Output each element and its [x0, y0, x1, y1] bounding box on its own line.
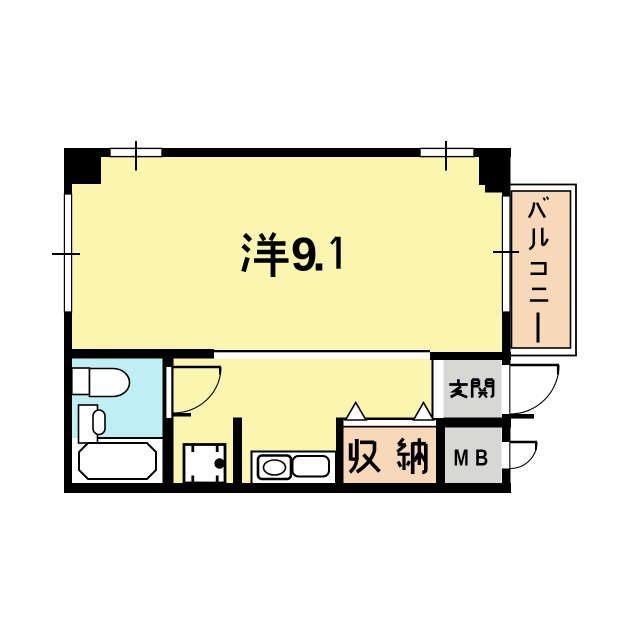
- svg-text:.: .: [313, 228, 326, 281]
- svg-text:MB: MB: [454, 445, 495, 471]
